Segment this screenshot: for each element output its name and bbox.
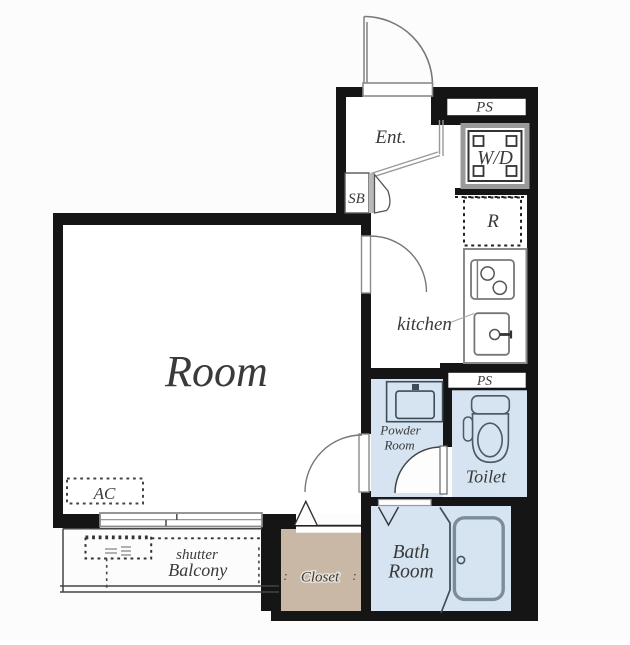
svg-text::: :: [283, 568, 287, 583]
svg-text:SB: SB: [348, 191, 365, 207]
svg-text:R: R: [486, 211, 499, 232]
svg-text:PS: PS: [476, 373, 492, 388]
svg-text::: :: [352, 568, 356, 583]
svg-text:Room: Room: [387, 562, 434, 583]
svg-text:Balcony: Balcony: [168, 560, 227, 580]
svg-text:Ent.: Ent.: [374, 127, 406, 148]
svg-text:Bath: Bath: [393, 542, 430, 563]
svg-text:W/D: W/D: [477, 148, 513, 169]
svg-text:Room: Room: [383, 438, 414, 453]
svg-text:Closet: Closet: [301, 570, 340, 586]
svg-text:Toilet: Toilet: [466, 467, 507, 487]
svg-text:AC: AC: [93, 484, 116, 503]
svg-text:PS: PS: [475, 100, 493, 116]
svg-text:kitchen: kitchen: [397, 314, 452, 335]
svg-text:Room: Room: [164, 347, 268, 396]
svg-text:Powder: Powder: [379, 423, 421, 438]
